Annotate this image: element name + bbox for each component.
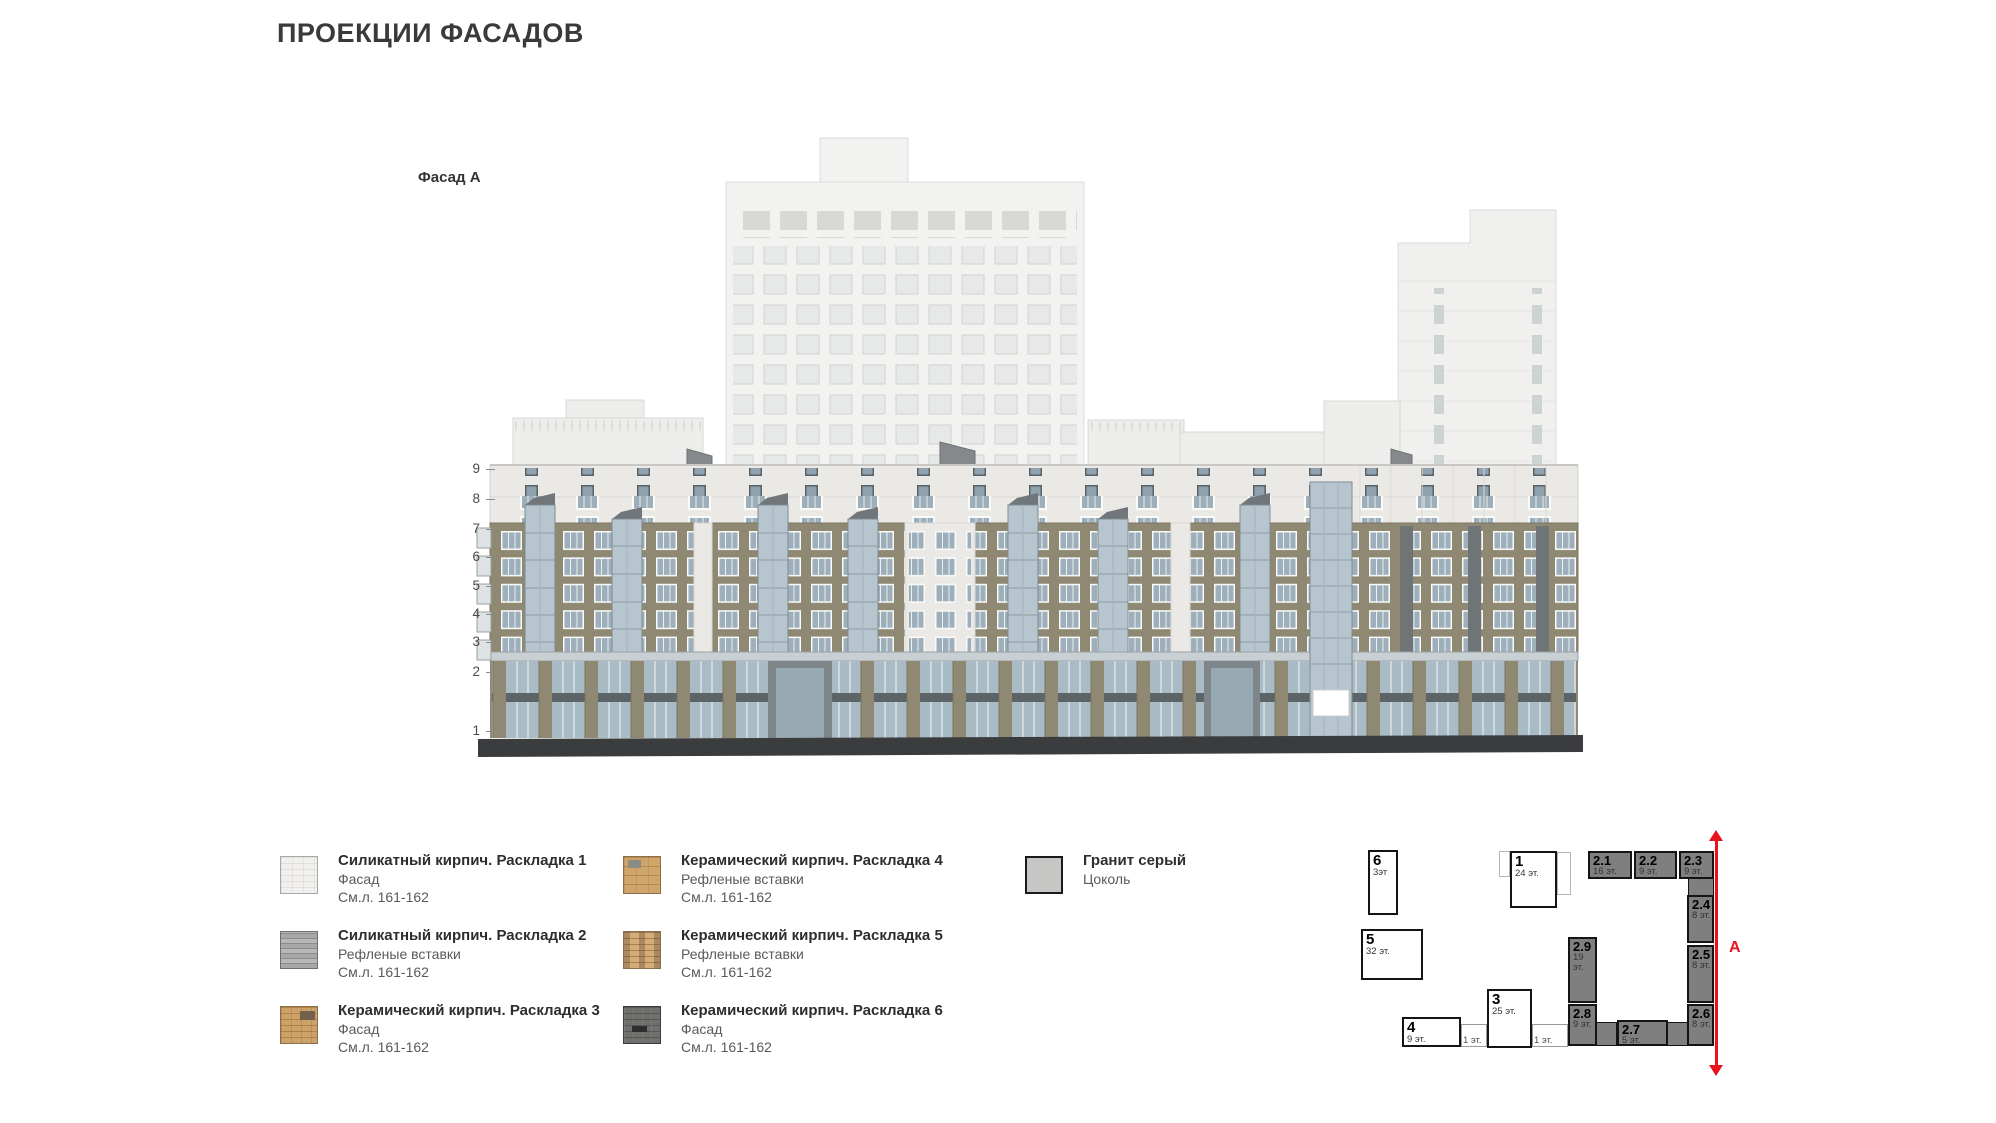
- plan-dark-connector: [1666, 1022, 1689, 1046]
- plan-building-5: 532 эт.: [1361, 929, 1423, 980]
- floor-number-9: 9: [454, 461, 480, 476]
- legend-line: См.л. 161-162: [338, 963, 650, 981]
- plan-building-floors: 5 эт.: [1622, 1036, 1666, 1046]
- plan-building-floors: 24 эт.: [1515, 869, 1555, 879]
- legend-line: См.л. 161-162: [681, 963, 993, 981]
- legend-swatch-ceramic-6: [623, 1006, 661, 1044]
- floor-number-2: 2: [454, 664, 480, 679]
- section-label: А: [1729, 939, 1741, 957]
- plan-building-floors: 25 эт.: [1492, 1007, 1530, 1017]
- plan-building-4: 49 эт.: [1402, 1017, 1461, 1047]
- glass-tower: [1310, 482, 1352, 738]
- plan-dark-connector: [1688, 877, 1714, 897]
- plan-connector-1fl: 1 эт.: [1532, 1024, 1568, 1047]
- plan-building-6: 63эт: [1368, 850, 1398, 915]
- plan-building-2.1: 2.116 эт.: [1588, 851, 1632, 879]
- section-arrow-top: [1709, 830, 1723, 841]
- plan-building-floors: 19 эт.: [1573, 953, 1595, 973]
- plinth: [478, 735, 1583, 757]
- main-building-ground: [490, 652, 1578, 738]
- floor-number-8: 8: [454, 491, 480, 506]
- plan-building-2.5: 2.58 эт.: [1687, 945, 1714, 1003]
- legend-swatch-ceramic-3: [280, 1006, 318, 1044]
- legend-title: Силикатный кирпич. Раскладка 1: [338, 852, 650, 870]
- legend-swatch-ceramic-4: [623, 856, 661, 894]
- legend-line: Рефленые вставки: [338, 945, 650, 963]
- plan-building-2.9: 2.919 эт.: [1568, 937, 1597, 1003]
- plan-building-2.8: 2.89 эт.: [1568, 1004, 1597, 1046]
- plan-wing-outline: [1499, 851, 1510, 877]
- plan-connector-1fl: 1 эт.: [1461, 1024, 1487, 1047]
- plan-building-number: 5: [1366, 932, 1421, 947]
- legend-title: Керамический кирпич. Раскладка 6: [681, 1002, 993, 1020]
- plan-building-floors: 9 эт.: [1573, 1020, 1595, 1030]
- legend-swatch-silicate-1: [280, 856, 318, 894]
- legend-line: Цоколь: [1083, 870, 1395, 888]
- plan-building-floors: 8 эт.: [1692, 961, 1712, 971]
- legend-item-silicate-2: Силикатный кирпич. Раскладка 2Рефленые в…: [280, 927, 650, 981]
- section-cut-line: [1715, 840, 1718, 1066]
- legend-item-silicate-1: Силикатный кирпич. Раскладка 1ФасадСм.л.…: [280, 852, 650, 906]
- plan-building-floors: 9 эт.: [1407, 1035, 1459, 1045]
- legend-title: Силикатный кирпич. Раскладка 2: [338, 927, 650, 945]
- plan-building-floors: 16 эт.: [1593, 867, 1630, 877]
- plan-building-floors: 9 эт.: [1684, 867, 1712, 877]
- legend-line: Рефленые вставки: [681, 870, 993, 888]
- legend-item-ceramic-3: Керамический кирпич. Раскладка 3ФасадСм.…: [280, 1002, 650, 1056]
- legend-line: Фасад: [338, 870, 650, 888]
- legend-item-ceramic-5: Керамический кирпич. Раскладка 5Рефленые…: [623, 927, 993, 981]
- plan-building-floors: 8 эт.: [1692, 1020, 1712, 1030]
- floor-number-1: 1: [454, 723, 480, 738]
- plan-building-floors: 3эт: [1373, 868, 1396, 878]
- legend-swatch-silicate-2: [280, 931, 318, 969]
- plan-building-2.4: 2.48 эт.: [1687, 895, 1714, 943]
- legend-swatch-granite: [1025, 856, 1063, 894]
- legend-item-ceramic-4: Керамический кирпич. Раскладка 4Рефленые…: [623, 852, 993, 906]
- legend-swatch-ceramic-5: [623, 931, 661, 969]
- plan-building-number: 3: [1492, 992, 1530, 1007]
- legend-line: См.л. 161-162: [681, 888, 993, 906]
- plan-building-floors: 32 эт.: [1366, 947, 1421, 957]
- plan-building-2.6: 2.68 эт.: [1687, 1004, 1714, 1046]
- legend-title: Керамический кирпич. Раскладка 5: [681, 927, 993, 945]
- legend-line: См.л. 161-162: [681, 1038, 993, 1056]
- plan-building-2.3: 2.39 эт.: [1679, 851, 1714, 879]
- plan-building-number: 1: [1515, 854, 1555, 869]
- plan-dark-connector: [1595, 1022, 1617, 1046]
- facade-label: Фасад А: [418, 169, 481, 186]
- legend-line: См.л. 161-162: [338, 888, 650, 906]
- floor-number-6: 6: [454, 549, 480, 564]
- plan-building-2.7: 2.75 эт.: [1617, 1020, 1668, 1046]
- section-arrow-bottom: [1709, 1065, 1723, 1076]
- legend-line: Фасад: [338, 1020, 650, 1038]
- page-title: ПРОЕКЦИИ ФАСАДОВ: [277, 18, 584, 49]
- drawing-sheet: ПРОЕКЦИИ ФАСАДОВ Фасад А 987654321 Силик…: [0, 0, 1996, 1123]
- legend-title: Керамический кирпич. Раскладка 4: [681, 852, 993, 870]
- plan-building-number: 6: [1373, 853, 1396, 868]
- legend-title: Гранит серый: [1083, 852, 1395, 870]
- legend-column-2: Керамический кирпич. Раскладка 4Рефленые…: [623, 852, 993, 1077]
- plan-building-number: 4: [1407, 1020, 1459, 1035]
- legend-line: Рефленые вставки: [681, 945, 993, 963]
- legend-title: Керамический кирпич. Раскладка 3: [338, 1002, 650, 1020]
- legend-item-granite: Гранит серыйЦоколь: [1025, 852, 1395, 904]
- floor-number-3: 3: [454, 634, 480, 649]
- floor-number-5: 5: [454, 578, 480, 593]
- legend-column-1: Силикатный кирпич. Раскладка 1ФасадСм.л.…: [280, 852, 650, 1077]
- plan-building-1: 124 эт.: [1510, 851, 1557, 908]
- floor-number-7: 7: [454, 521, 480, 536]
- legend-line: Фасад: [681, 1020, 993, 1038]
- plan-wing-outline: [1557, 852, 1571, 895]
- plan-building-2.2: 2.29 эт.: [1634, 851, 1677, 879]
- legend-column-3: Гранит серыйЦоколь: [1025, 852, 1395, 925]
- plan-building-floors: 8 эт.: [1692, 911, 1712, 921]
- plan-building-floors: 9 эт.: [1639, 867, 1675, 877]
- plan-building-3: 325 эт.: [1487, 989, 1532, 1048]
- legend-item-ceramic-6: Керамический кирпич. Раскладка 6ФасадСм.…: [623, 1002, 993, 1056]
- floor-number-4: 4: [454, 606, 480, 621]
- legend-line: См.л. 161-162: [338, 1038, 650, 1056]
